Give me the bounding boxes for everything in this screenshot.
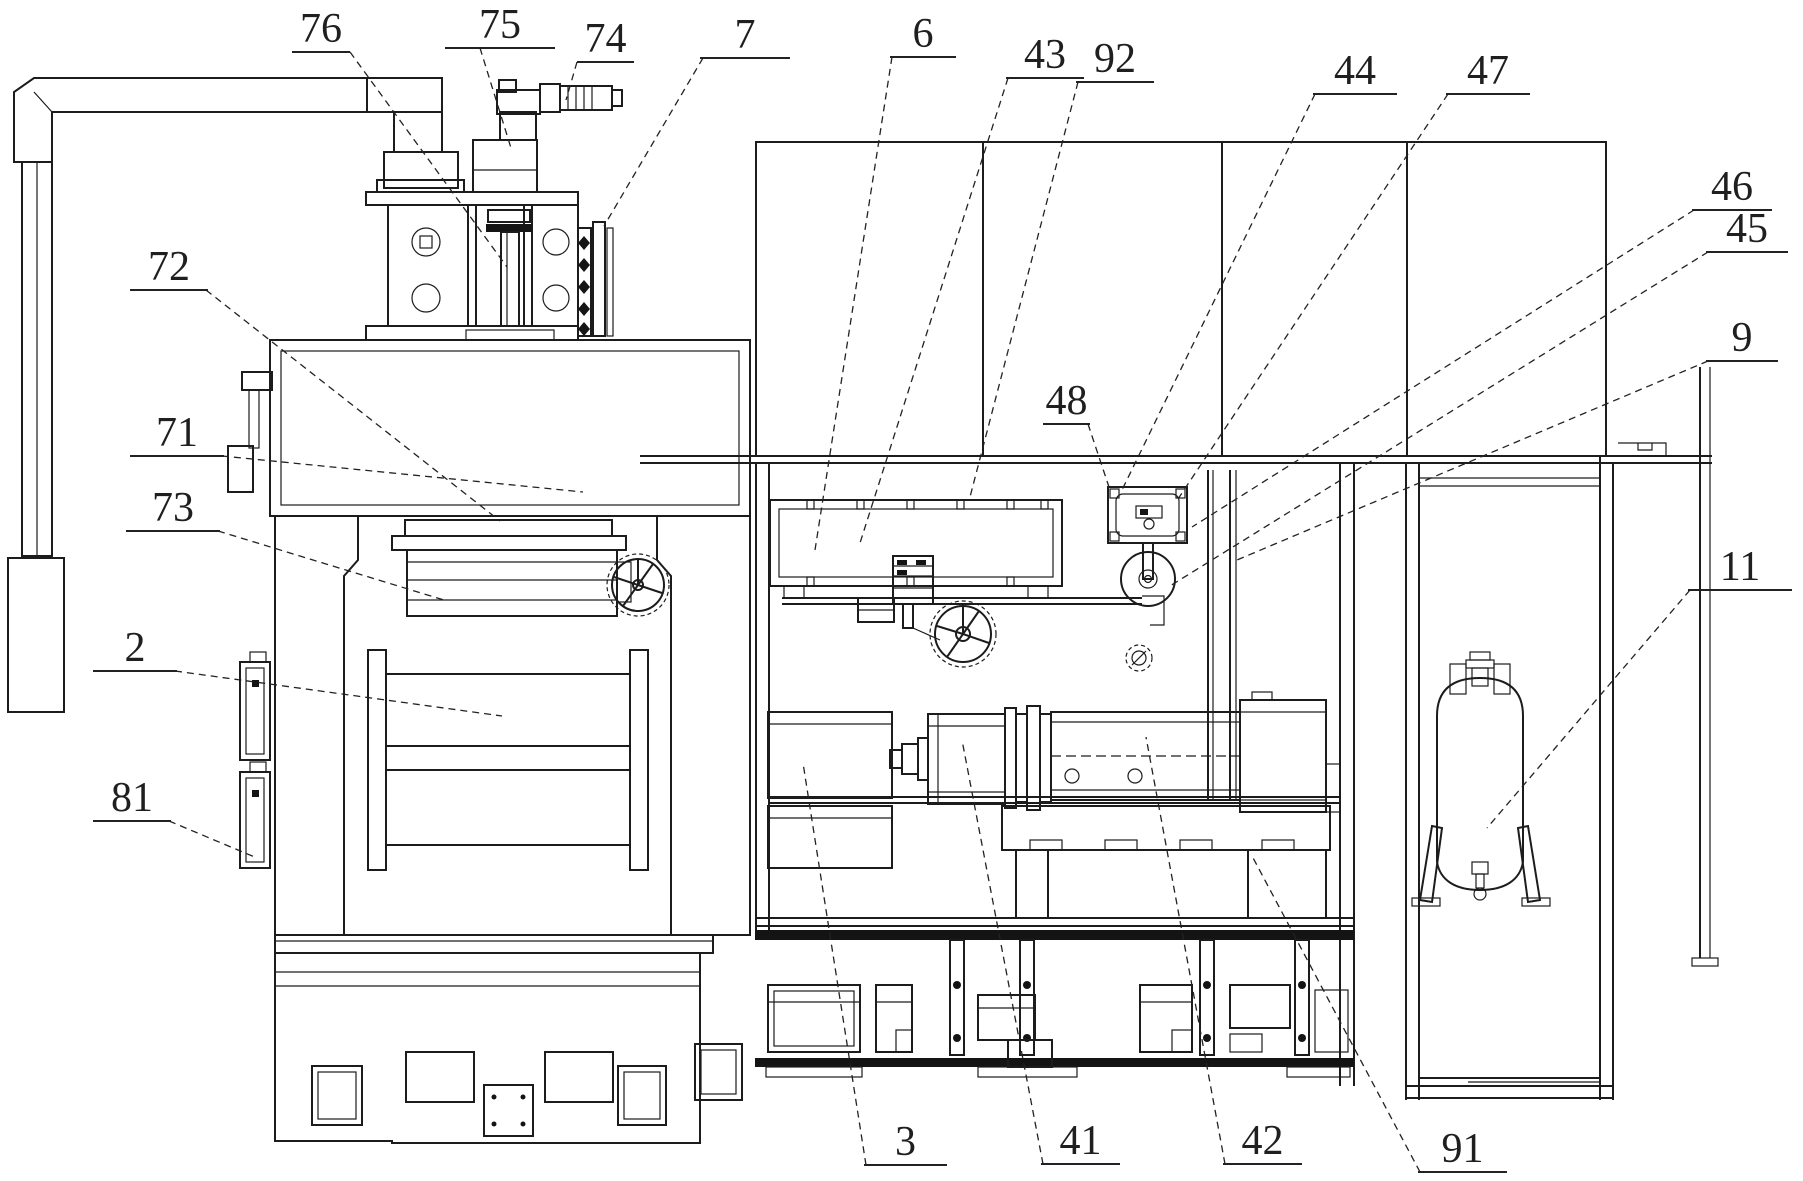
part-label-46: 46 xyxy=(1192,164,1772,527)
leader-line-73 xyxy=(218,531,444,600)
leader-line-6 xyxy=(815,57,892,550)
upper-roller xyxy=(386,674,630,746)
machine-line-drawing: 7675747643924447464594811727173281341429… xyxy=(0,0,1803,1181)
label-text-43: 43 xyxy=(1024,32,1066,78)
gearbox xyxy=(1240,700,1326,812)
tank-bay xyxy=(1406,367,1718,1100)
leader-line-76 xyxy=(350,52,507,267)
drive-motor xyxy=(928,714,1005,804)
leader-line-11 xyxy=(1487,590,1690,828)
patent-figure: 7675747643924447464594811727173281341429… xyxy=(0,0,1803,1181)
leader-line-92 xyxy=(970,82,1078,497)
part-label-2: 2 xyxy=(93,625,502,716)
elbow-fitting xyxy=(540,84,560,112)
label-text-74: 74 xyxy=(585,16,627,62)
leader-line-7 xyxy=(604,58,703,226)
leader-line-45 xyxy=(1170,252,1708,586)
part-label-43: 43 xyxy=(860,32,1084,543)
label-text-11: 11 xyxy=(1720,544,1760,590)
label-text-76: 76 xyxy=(300,6,342,52)
label-text-7: 7 xyxy=(735,12,756,58)
duct-and-pipe xyxy=(8,78,464,712)
label-text-47: 47 xyxy=(1467,48,1509,94)
chamber-boxes xyxy=(768,712,892,868)
part-label-76: 76 xyxy=(292,6,507,267)
mill-base xyxy=(275,935,713,1143)
label-text-71: 71 xyxy=(156,410,198,456)
label-text-92: 92 xyxy=(1094,36,1136,82)
rack-7 xyxy=(578,222,613,336)
mill-housing xyxy=(228,340,750,516)
label-text-48: 48 xyxy=(1046,378,1088,424)
part-label-48: 48 xyxy=(1043,378,1109,487)
leader-line-2 xyxy=(175,671,502,716)
part-label-11: 11 xyxy=(1487,544,1792,828)
part-label-72: 72 xyxy=(130,244,500,521)
leader-line-75 xyxy=(480,48,511,148)
top-cabinet xyxy=(756,142,1606,456)
press-frame xyxy=(366,192,578,340)
label-text-3: 3 xyxy=(895,1119,916,1165)
part-label-6: 6 xyxy=(815,11,956,550)
label-text-91: 91 xyxy=(1442,1126,1484,1172)
tank-11 xyxy=(1412,652,1550,906)
part-label-47: 47 xyxy=(1178,48,1530,499)
lower-cabinet xyxy=(695,918,1354,1100)
leader-line-81 xyxy=(169,821,257,858)
leader-line-9 xyxy=(1237,361,1708,560)
lower-roller xyxy=(386,770,630,845)
label-text-75: 75 xyxy=(479,2,521,48)
leader-line-3 xyxy=(803,763,866,1165)
part-label-81: 81 xyxy=(93,775,257,858)
part-label-92: 92 xyxy=(970,36,1154,497)
base-bracket xyxy=(484,1085,533,1136)
label-text-81: 81 xyxy=(111,775,153,821)
part-label-7: 7 xyxy=(604,12,790,226)
leader-line-72 xyxy=(206,290,500,521)
part-label-71: 71 xyxy=(130,410,583,492)
bolted-plate xyxy=(1108,487,1187,543)
label-text-9: 9 xyxy=(1732,315,1753,361)
part-label-73: 73 xyxy=(126,485,444,600)
label-text-42: 42 xyxy=(1242,1118,1284,1164)
bearing-block-lower xyxy=(240,762,270,868)
leader-line-44 xyxy=(1122,94,1315,490)
hand-wheel-large xyxy=(930,601,996,667)
center-enclosure xyxy=(640,142,1712,1100)
label-text-44: 44 xyxy=(1334,48,1376,94)
extruder-assembly xyxy=(890,692,1340,918)
part-label-45: 45 xyxy=(1170,206,1788,586)
bearing-block-upper xyxy=(240,652,270,760)
leader-line-46 xyxy=(1192,210,1694,527)
support-column-9 xyxy=(1208,470,1236,800)
leader-line-43 xyxy=(860,78,1008,543)
plate-stack xyxy=(392,520,631,616)
part-label-9: 9 xyxy=(1237,315,1778,560)
label-text-45: 45 xyxy=(1726,206,1768,252)
part-label-42: 42 xyxy=(1146,737,1302,1164)
label-text-2: 2 xyxy=(125,625,146,671)
label-text-6: 6 xyxy=(913,11,934,57)
leader-line-71 xyxy=(222,456,583,492)
part-label-3: 3 xyxy=(803,763,947,1165)
label-text-41: 41 xyxy=(1060,1118,1102,1164)
mill-assembly xyxy=(8,78,750,1143)
label-text-72: 72 xyxy=(148,244,190,290)
roller-stand xyxy=(240,516,750,935)
label-text-46: 46 xyxy=(1711,164,1753,210)
label-text-73: 73 xyxy=(152,485,194,531)
